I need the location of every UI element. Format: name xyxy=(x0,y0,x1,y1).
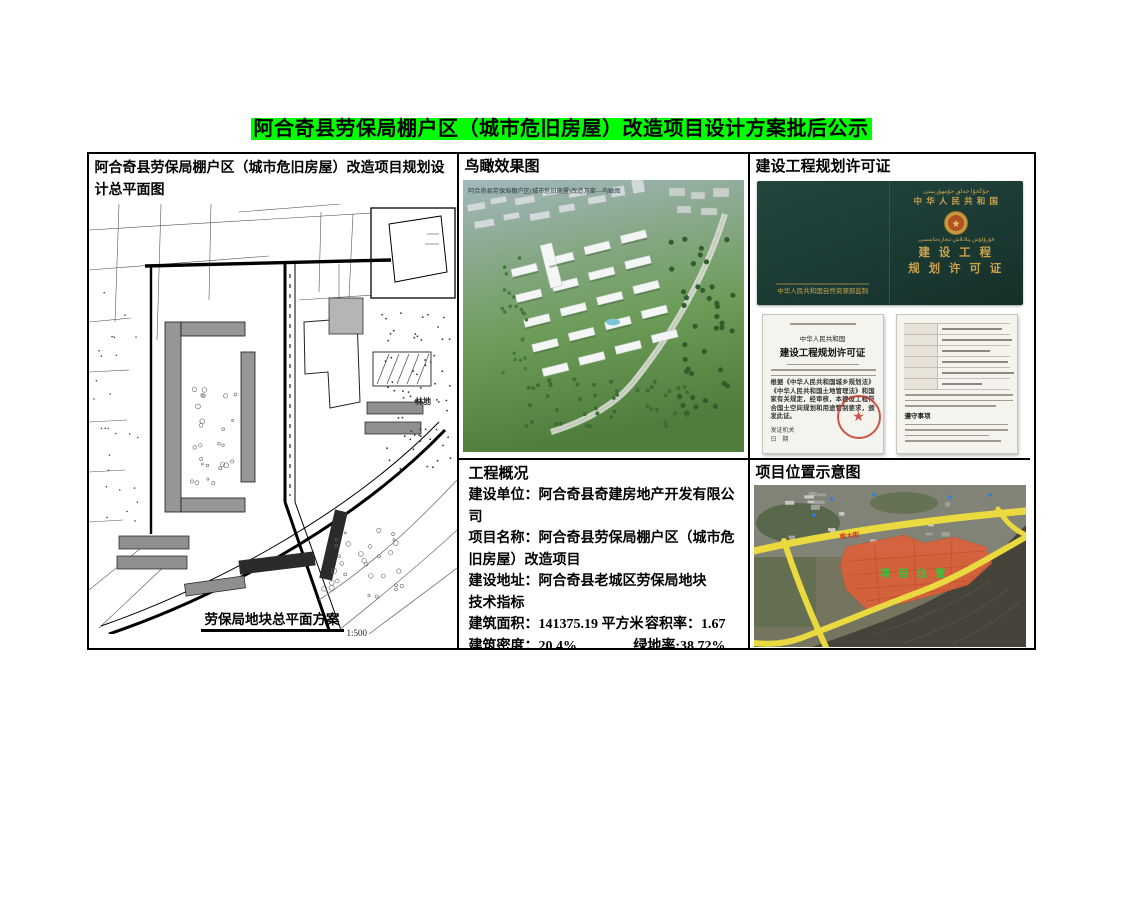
overview-density-row: 建筑密度：20.4%绿地率:38.72% xyxy=(469,636,740,649)
panel-overview: 工程概况 建设单位：阿合奇县奇建房地产开发有限公司 项目名称：阿合奇县劳保局棚户… xyxy=(459,460,750,648)
permit-uyghur-top: جۇڭخۇا خەلق جۇمھۇرىيىتى xyxy=(890,188,1023,196)
permit-cover-line1: 建 设 工 程 xyxy=(890,246,1023,260)
location-title: 项目位置示意图 xyxy=(750,460,1030,484)
certificate-header: 中华人民共和国 xyxy=(763,333,883,343)
overview-address: 建设地址：阿合奇县老城区劳保局地块 xyxy=(469,571,740,593)
permit-booklet-photo: 中华人民共和国自然资源部监制 جۇڭخۇا خەلق جۇمھۇرىيىتى 中… xyxy=(757,181,1023,305)
overview-builder: 建设单位：阿合奇县奇建房地产开发有限公司 xyxy=(469,485,740,528)
red-seal-stamp: ★ xyxy=(837,395,881,439)
panel-location: 项目位置示意图 xyxy=(750,460,1030,648)
svg-text:★: ★ xyxy=(952,219,961,230)
project-location-label: 项 目 位 置 xyxy=(879,567,948,580)
permit-publisher: 中华人民共和国自然资源部监制 xyxy=(777,288,868,295)
overview-indicators-heading: 技术指标 xyxy=(469,593,740,615)
panel-aerial-view: 鸟瞰效果图 xyxy=(459,154,750,460)
site-plan-inset xyxy=(371,208,455,298)
permit-uyghur-mid: قۇرۇلۇش پىلانلاش ئىجازەتنامىسى xyxy=(890,237,1023,244)
permit-certificate-page: 中华人民共和国 建设工程规划许可证 根据《中华人民共和国城乡规划法》《中华人民共… xyxy=(762,314,884,454)
permit-country: 中 华 人 民 共 和 国 xyxy=(890,196,1023,207)
permit-booklet-front-cover: جۇڭخۇا خەلق جۇمھۇرىيىتى 中 华 人 民 共 和 国 ★ … xyxy=(890,181,1023,305)
site-plan-title: 阿合奇县劳保局棚户区（城市危旧房屋）改造项目规划设计总平面图 xyxy=(89,154,457,202)
permit-detail-page: 遵守事项 xyxy=(896,314,1018,454)
permit-cover-line2: 规 划 许 可 证 xyxy=(890,262,1023,276)
overview-project-name: 项目名称：阿合奇县劳保局棚户区（城市危旧房屋）改造项目 xyxy=(469,528,740,571)
page-title: 阿合奇县劳保局棚户区（城市危旧房屋）改造项目设计方案批后公示 xyxy=(251,118,872,140)
notice-table: 阿合奇县劳保局棚户区（城市危旧房屋）改造项目规划设计总平面图 xyxy=(87,152,1036,650)
national-emblem-icon: ★ xyxy=(943,210,969,236)
aerial-render: 阿合奇县劳保局棚户区(城市危旧房屋)改造方案—鸟瞰图 xyxy=(463,180,744,452)
panel-permit: 建设工程规划许可证 中华人民共和国自然资源部监制 جۇڭخۇا خەلق جۇم… xyxy=(750,154,1030,460)
permit-booklet-back-cover: 中华人民共和国自然资源部监制 xyxy=(757,181,891,305)
overview-title: 工程概况 xyxy=(469,463,740,485)
site-plan-drawing: 林地 xyxy=(89,204,459,634)
forest-dots xyxy=(381,312,451,469)
forest-label: 林地 xyxy=(415,396,431,406)
permit-title: 建设工程规划许可证 xyxy=(750,154,1030,178)
aerial-title: 鸟瞰效果图 xyxy=(459,154,748,178)
permit-notes-title: 遵守事项 xyxy=(897,407,1017,420)
aerial-overlay-caption: 阿合奇县劳保局棚户区(城市危旧房屋)改造方案—鸟瞰图 xyxy=(468,187,621,195)
certificate-title: 建设工程规划许可证 xyxy=(763,345,883,359)
overview-area-row: 建筑面积：141375.19 平方米容积率：1.67 xyxy=(469,614,740,636)
site-plan-scale: 1:500 xyxy=(347,628,368,638)
page-header: 阿合奇县劳保局棚户区（城市危旧房屋）改造项目设计方案批后公示 xyxy=(0,118,1122,140)
panel-site-plan: 阿合奇县劳保局棚户区（城市危旧房屋）改造项目规划设计总平面图 xyxy=(89,154,459,648)
location-map: 南大街 项 目 位 置 xyxy=(754,485,1026,647)
certificate-issuer: 发证机关 日 期 xyxy=(771,427,795,445)
site-plan-caption: 劳保局地块总平面方案 xyxy=(201,608,344,632)
